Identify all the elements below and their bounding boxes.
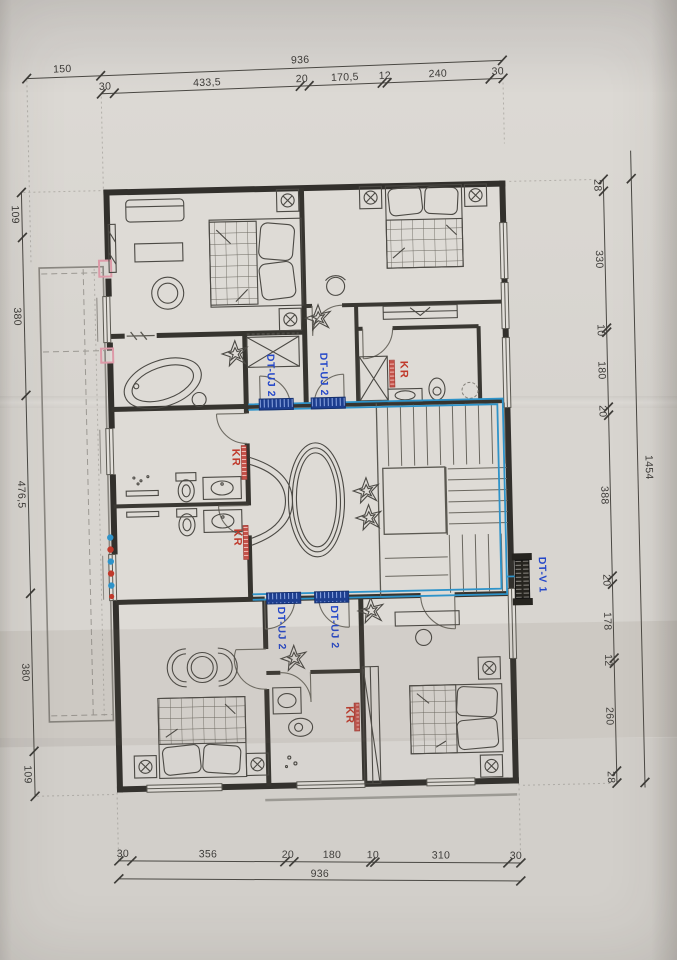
radiator-label: KR bbox=[343, 706, 355, 724]
radiator-label: KR bbox=[231, 529, 243, 547]
dim-right-10: 28 bbox=[605, 771, 617, 784]
unit-label: DT-UJ 2 bbox=[317, 353, 330, 397]
dim-top-3: 170,5 bbox=[331, 71, 359, 84]
dim-top-6: 30 bbox=[491, 65, 504, 77]
unit-label: DT-UJ 2 bbox=[264, 354, 277, 398]
dim-bottom-0: 30 bbox=[117, 848, 129, 860]
dim-right-8: 12 bbox=[602, 654, 614, 667]
dim-top-4: 12 bbox=[379, 70, 392, 82]
dim-bottom-overall: 936 bbox=[311, 868, 329, 880]
dim-right-5: 388 bbox=[598, 486, 610, 505]
fan-coil-unit bbox=[315, 591, 349, 603]
dim-right-3: 180 bbox=[595, 361, 607, 380]
dim-bottom-2: 20 bbox=[282, 849, 294, 861]
fan-coil-unit bbox=[267, 592, 301, 604]
dimension-right: 28 330 10 180 20 388 20 178 12 260 28 14… bbox=[591, 150, 662, 788]
outdoor-unit bbox=[515, 560, 530, 598]
dim-left-4: 109 bbox=[21, 765, 33, 784]
dim-top-2: 20 bbox=[296, 73, 309, 85]
outdoor-unit-label: DT-V 1 bbox=[536, 557, 549, 594]
radiator-label: KR bbox=[397, 361, 409, 379]
dim-bottom-4: 10 bbox=[367, 849, 379, 861]
dim-right-6: 20 bbox=[600, 574, 612, 587]
dim-right-9: 260 bbox=[603, 707, 615, 726]
dim-left-3: 380 bbox=[19, 663, 31, 682]
dim-left-1: 380 bbox=[11, 307, 23, 326]
dim-top-5: 240 bbox=[428, 67, 447, 80]
dim-right-overall: 1454 bbox=[643, 455, 656, 480]
dim-bottom-5: 310 bbox=[432, 849, 450, 861]
radiator-label: KR bbox=[229, 449, 241, 467]
dim-right-1: 330 bbox=[593, 250, 605, 269]
dimension-left: 109 380 476,5 380 109 bbox=[8, 188, 39, 801]
outdoor-unit-cap bbox=[512, 553, 532, 560]
dim-top-1: 433,5 bbox=[193, 76, 221, 89]
balcony bbox=[39, 267, 113, 722]
radiator-strip bbox=[389, 360, 395, 387]
dim-bottom-1: 356 bbox=[199, 848, 217, 860]
dim-top-0: 30 bbox=[99, 80, 112, 92]
floor-plan-photo: KR KR KR bbox=[0, 0, 677, 960]
dim-top-left-offset: 150 bbox=[53, 63, 72, 76]
dim-right-7: 178 bbox=[601, 612, 613, 631]
dimension-bottom: 30 356 20 180 10 310 30 936 bbox=[114, 848, 525, 886]
unit-label: DT-UJ 2 bbox=[328, 605, 341, 649]
outdoor-unit-cap bbox=[513, 598, 533, 605]
fan-coil-unit bbox=[259, 398, 293, 410]
dim-top-overall: 936 bbox=[291, 54, 310, 67]
dim-right-2: 10 bbox=[595, 324, 607, 337]
dim-right-0: 28 bbox=[591, 179, 603, 192]
dim-right-4: 20 bbox=[596, 405, 608, 418]
dim-bottom-6: 30 bbox=[510, 850, 522, 862]
dim-left-0: 109 bbox=[9, 205, 21, 224]
floor-plan-drawing: KR KR KR bbox=[0, 0, 677, 960]
dimension-top: 150 936 30 433,5 20 170,5 12 240 30 bbox=[22, 46, 508, 101]
fan-coil-unit bbox=[311, 397, 345, 409]
dim-bottom-3: 180 bbox=[323, 849, 341, 861]
dim-left-2: 476,5 bbox=[15, 481, 28, 509]
unit-label: DT-UJ 2 bbox=[275, 607, 288, 651]
